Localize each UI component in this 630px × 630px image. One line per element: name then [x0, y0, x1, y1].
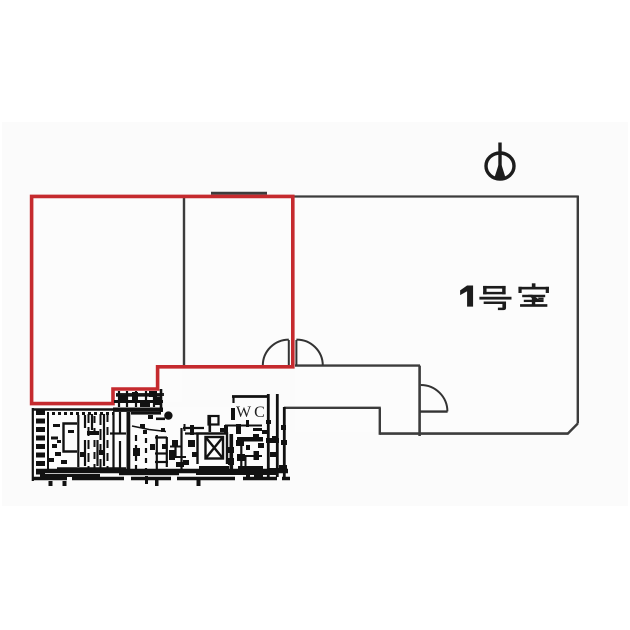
svg-text:WC: WC [236, 404, 268, 421]
